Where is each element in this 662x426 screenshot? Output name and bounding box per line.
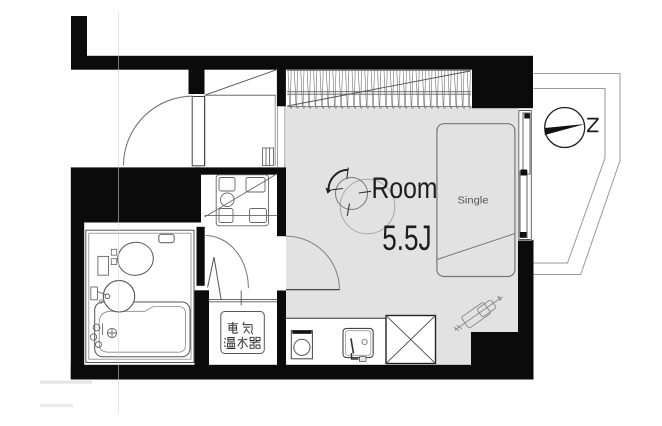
svg-text:Room: Room (372, 172, 438, 205)
svg-text:Single: Single (458, 196, 489, 207)
svg-text:5.5J: 5.5J (382, 219, 431, 258)
